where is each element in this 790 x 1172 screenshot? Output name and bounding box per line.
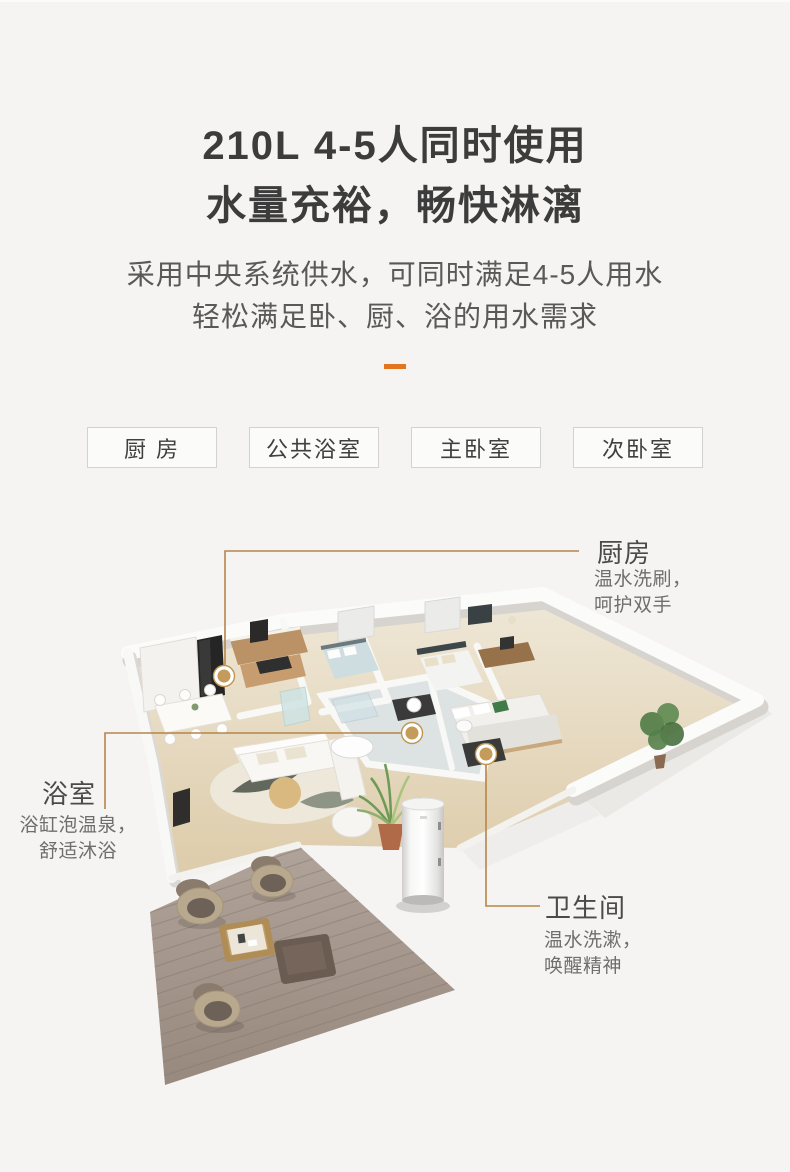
callout-toilet-desc-line1: 温水洗漱， (544, 928, 642, 954)
callout-bathroom-desc: 浴缸泡温泉， 舒适沐浴 (10, 813, 146, 865)
callout-kitchen-desc: 温水洗刷， 呵护双手 (594, 567, 692, 619)
callout-kitchen-title: 厨房 (597, 533, 651, 570)
callout-toilet-desc: 温水洗漱， 唤醒精神 (544, 928, 642, 980)
marker-dot-bathroom (402, 723, 423, 744)
callout-kitchen-desc-line2: 呵护双手 (594, 593, 692, 619)
water-heater (396, 798, 450, 913)
callout-toilet-title: 卫生间 (545, 888, 626, 925)
section-subtitle: 采用中央系统供水，可同时满足4-5人用水 轻松满足卧、厨、浴的用水需求 (0, 254, 790, 338)
room-tag-public-bathroom: 公共浴室 (249, 427, 379, 468)
title-line-1: 210L 4-5人同时使用 (0, 116, 790, 176)
accent-divider (384, 364, 406, 369)
callout-bathroom-desc-line1: 浴缸泡温泉， (10, 813, 146, 839)
callout-bathroom-title: 浴室 (42, 774, 96, 811)
subtitle-line-1: 采用中央系统供水，可同时满足4-5人用水 (0, 254, 790, 296)
room-tag-master-bedroom: 主卧室 (411, 427, 541, 468)
room-tag-second-bedroom: 次卧室 (573, 427, 703, 468)
callout-kitchen-desc-line1: 温水洗刷， (594, 567, 692, 593)
page-top-edge (0, 0, 790, 2)
patio-table (222, 921, 272, 959)
marker-dot-toilet (476, 744, 497, 765)
product-detail-page: { "meta": { "background_color": "#f5f4f2… (0, 0, 790, 1172)
room-tag-kitchen: 厨 房 (87, 427, 217, 468)
patio-ottoman (278, 938, 332, 980)
subtitle-line-2: 轻松满足卧、厨、浴的用水需求 (0, 296, 790, 338)
section-title: 210L 4-5人同时使用 水量充裕，畅快淋漓 (0, 116, 790, 236)
title-line-2: 水量充裕，畅快淋漓 (0, 176, 790, 236)
callout-toilet-desc-line2: 唤醒精神 (544, 954, 642, 980)
display-cabinet (280, 687, 310, 726)
callout-bathroom-desc-line2: 舒适沐浴 (10, 839, 146, 865)
marker-dot-kitchen (214, 666, 235, 687)
room-tags-row: 厨 房 公共浴室 主卧室 次卧室 (0, 427, 790, 468)
